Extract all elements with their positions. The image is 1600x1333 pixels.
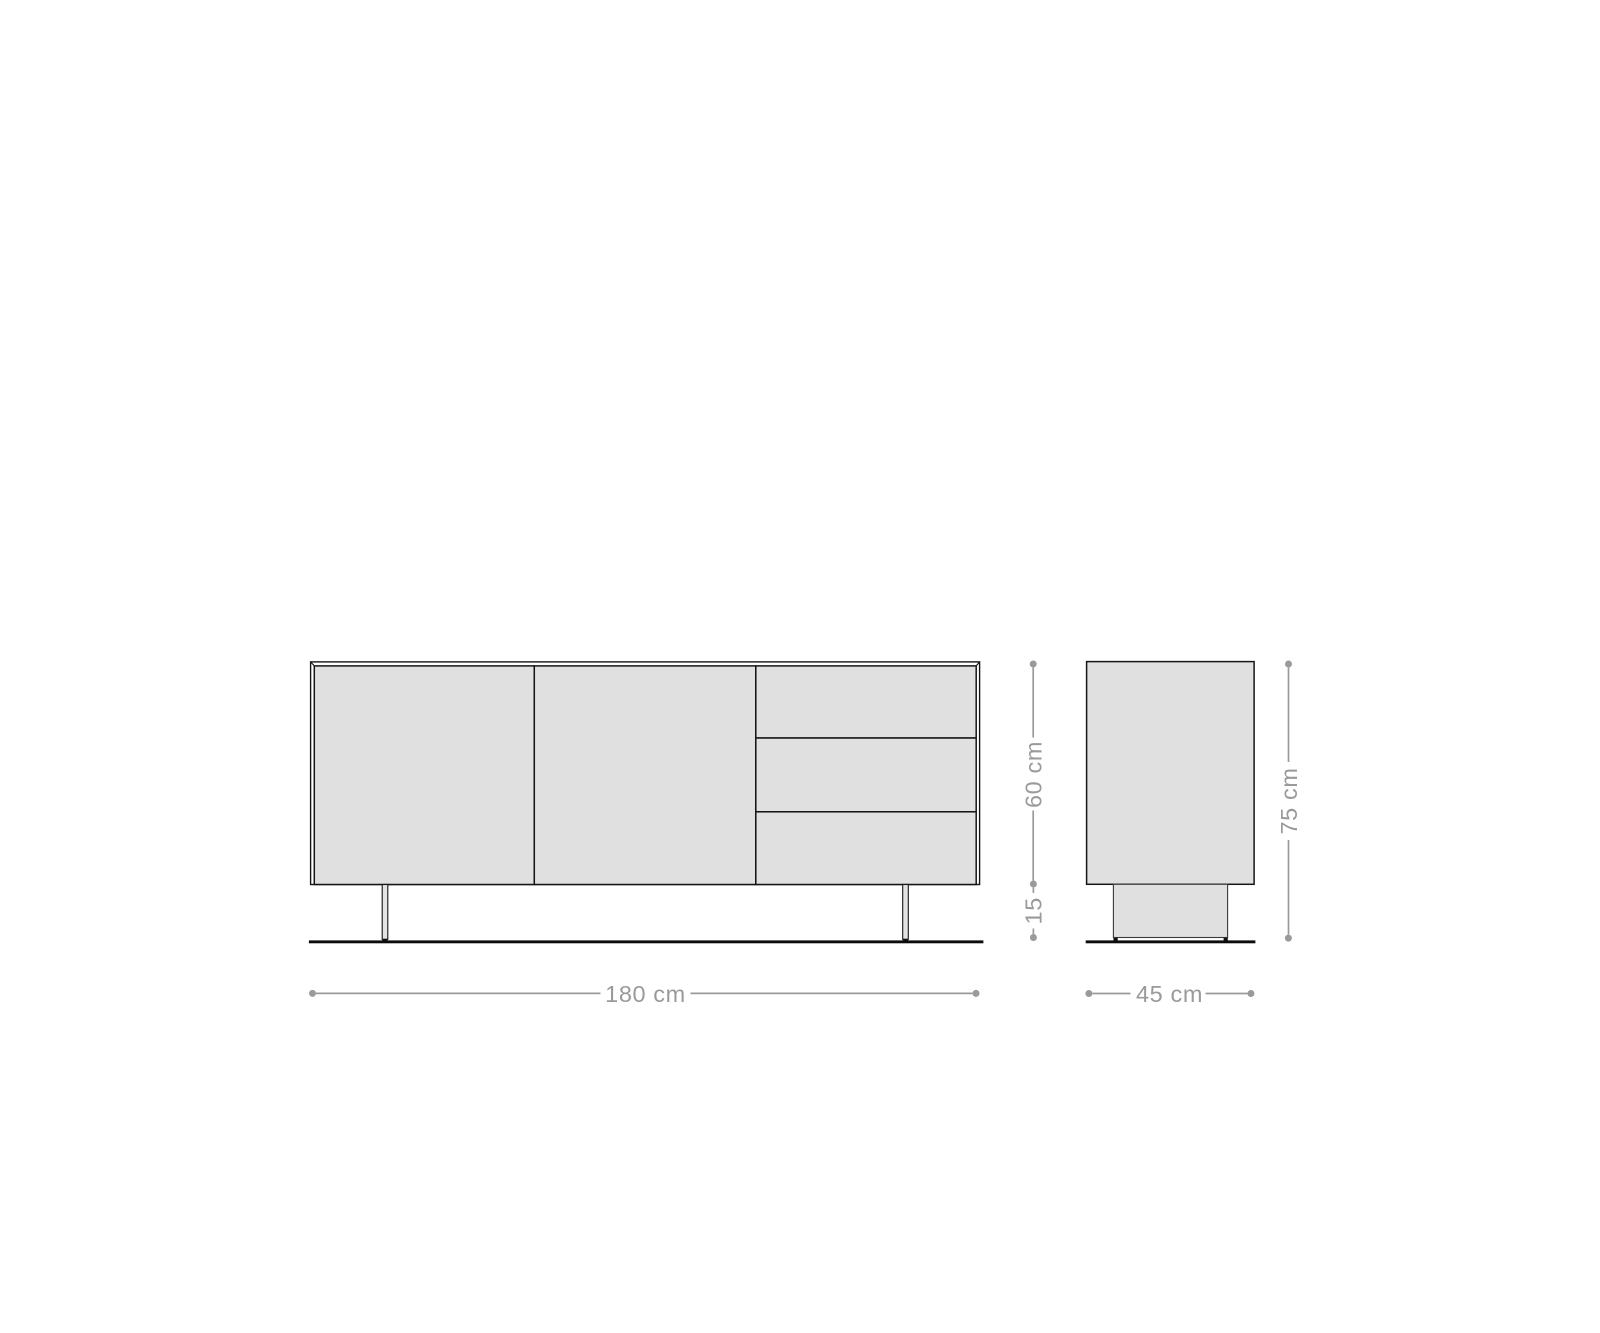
svg-text:15: 15	[1021, 897, 1047, 924]
svg-text:180 cm: 180 cm	[605, 981, 686, 1007]
svg-text:45 cm: 45 cm	[1136, 981, 1203, 1007]
svg-text:60 cm: 60 cm	[1021, 741, 1047, 808]
svg-text:75 cm: 75 cm	[1276, 768, 1302, 835]
